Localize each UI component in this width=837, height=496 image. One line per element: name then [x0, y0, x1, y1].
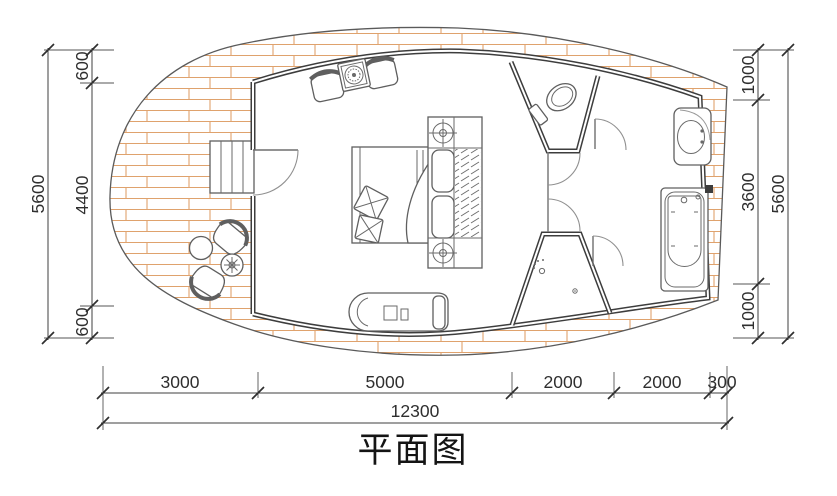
- bed: [352, 147, 431, 243]
- bed-pillow: [432, 196, 454, 238]
- dim-label-left-600-bottom: 600: [72, 307, 92, 336]
- dim-label-bottom-2000a: 2000: [544, 372, 583, 392]
- floor-plan-canvas: 600 4400 600 5600 1000 3600 1000 5600 30…: [0, 0, 837, 496]
- dim-label-right-3600: 3600: [738, 172, 758, 211]
- dim-label-left-600-top: 600: [72, 51, 92, 80]
- dim-label-right-1000-bottom: 1000: [738, 291, 758, 330]
- drawing-title: 平面图: [357, 431, 468, 470]
- dim-label-bottom-2000b: 2000: [643, 372, 682, 392]
- bed-pillow: [432, 150, 454, 192]
- entry-steps: [210, 141, 254, 193]
- bathtub: [661, 188, 708, 291]
- wardrobe-hatch: [455, 149, 481, 237]
- dim-label-bottom-5000: 5000: [366, 372, 405, 392]
- dim-label-bottom-300: 300: [707, 372, 736, 392]
- dim-label-right-overall: 5600: [768, 174, 788, 213]
- dim-label-bottom-overall: 12300: [391, 401, 440, 421]
- decor-pillow: [355, 215, 383, 243]
- stool: [190, 237, 213, 260]
- wall-pipe-block: [705, 185, 713, 193]
- daybed-pillow: [433, 296, 445, 329]
- vanity-sink: [674, 108, 711, 165]
- coffee-table: [221, 254, 243, 276]
- dim-label-left-overall: 5600: [28, 174, 48, 213]
- dim-label-right-1000-top: 1000: [738, 55, 758, 94]
- dim-label-left-4400: 4400: [72, 175, 92, 214]
- headboard-unit: [428, 117, 482, 268]
- side-table: [337, 58, 370, 91]
- daybed: [349, 293, 448, 331]
- floor-plan-page: 600 4400 600 5600 1000 3600 1000 5600 30…: [0, 0, 837, 496]
- dim-label-bottom-3000: 3000: [161, 372, 200, 392]
